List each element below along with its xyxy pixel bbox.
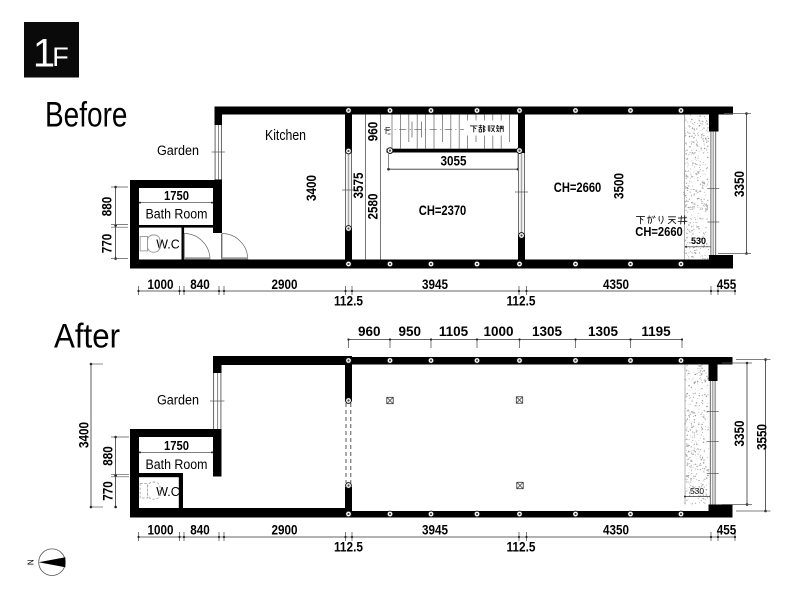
svg-text:CH=2370: CH=2370 [419,203,467,218]
svg-text:840: 840 [190,277,210,292]
svg-text:Garden: Garden [157,143,199,158]
svg-text:CH=2660: CH=2660 [554,180,602,195]
svg-text:3500: 3500 [612,173,627,199]
svg-text:1750: 1750 [164,188,189,203]
svg-text:840: 840 [190,523,210,538]
svg-text:3055: 3055 [441,154,467,169]
svg-text:960: 960 [358,324,381,339]
svg-text:880: 880 [101,446,116,466]
svg-text:N: N [27,559,36,565]
svg-text:4350: 4350 [603,277,629,292]
svg-text:770: 770 [100,234,115,254]
svg-text:3400: 3400 [304,175,319,201]
svg-text:530: 530 [690,486,704,496]
svg-text:3350: 3350 [732,421,747,447]
svg-text:3945: 3945 [422,277,448,292]
svg-text:950: 950 [399,324,422,339]
svg-text:2900: 2900 [272,277,298,292]
svg-text:455: 455 [717,523,737,538]
svg-text:1000: 1000 [483,324,513,339]
svg-text:112.5: 112.5 [334,540,363,555]
svg-text:Bath Room: Bath Room [146,207,208,222]
svg-text:1750: 1750 [164,438,189,453]
svg-text:2900: 2900 [272,523,298,538]
svg-text:F: F [52,42,69,72]
svg-text:455: 455 [717,277,737,292]
svg-text:1105: 1105 [439,324,469,339]
svg-text:Before: Before [45,95,128,135]
svg-text:3400: 3400 [77,422,92,448]
svg-text:960: 960 [366,122,381,142]
svg-text:2580: 2580 [366,194,381,220]
svg-text:3575: 3575 [351,172,366,198]
svg-text:3945: 3945 [422,523,448,538]
svg-text:3350: 3350 [732,171,747,197]
svg-text:1000: 1000 [148,277,174,292]
svg-text:Kitchen: Kitchen [265,127,306,144]
svg-text:770: 770 [101,481,116,501]
svg-text:1305: 1305 [588,324,619,339]
svg-text:1195: 1195 [641,324,671,339]
svg-text:112.5: 112.5 [507,540,536,555]
svg-text:After: After [54,318,120,356]
svg-text:Garden: Garden [157,393,199,408]
svg-text:112.5: 112.5 [334,294,363,309]
svg-text:4350: 4350 [603,523,629,538]
svg-text:530: 530 [691,236,706,247]
svg-text:1305: 1305 [532,324,563,339]
svg-text:Bath Room: Bath Room [146,457,208,472]
svg-text:CH=2660: CH=2660 [635,224,683,239]
svg-text:112.5: 112.5 [507,294,536,309]
svg-text:3550: 3550 [755,424,770,450]
svg-text:880: 880 [100,197,115,217]
svg-text:1000: 1000 [148,523,174,538]
